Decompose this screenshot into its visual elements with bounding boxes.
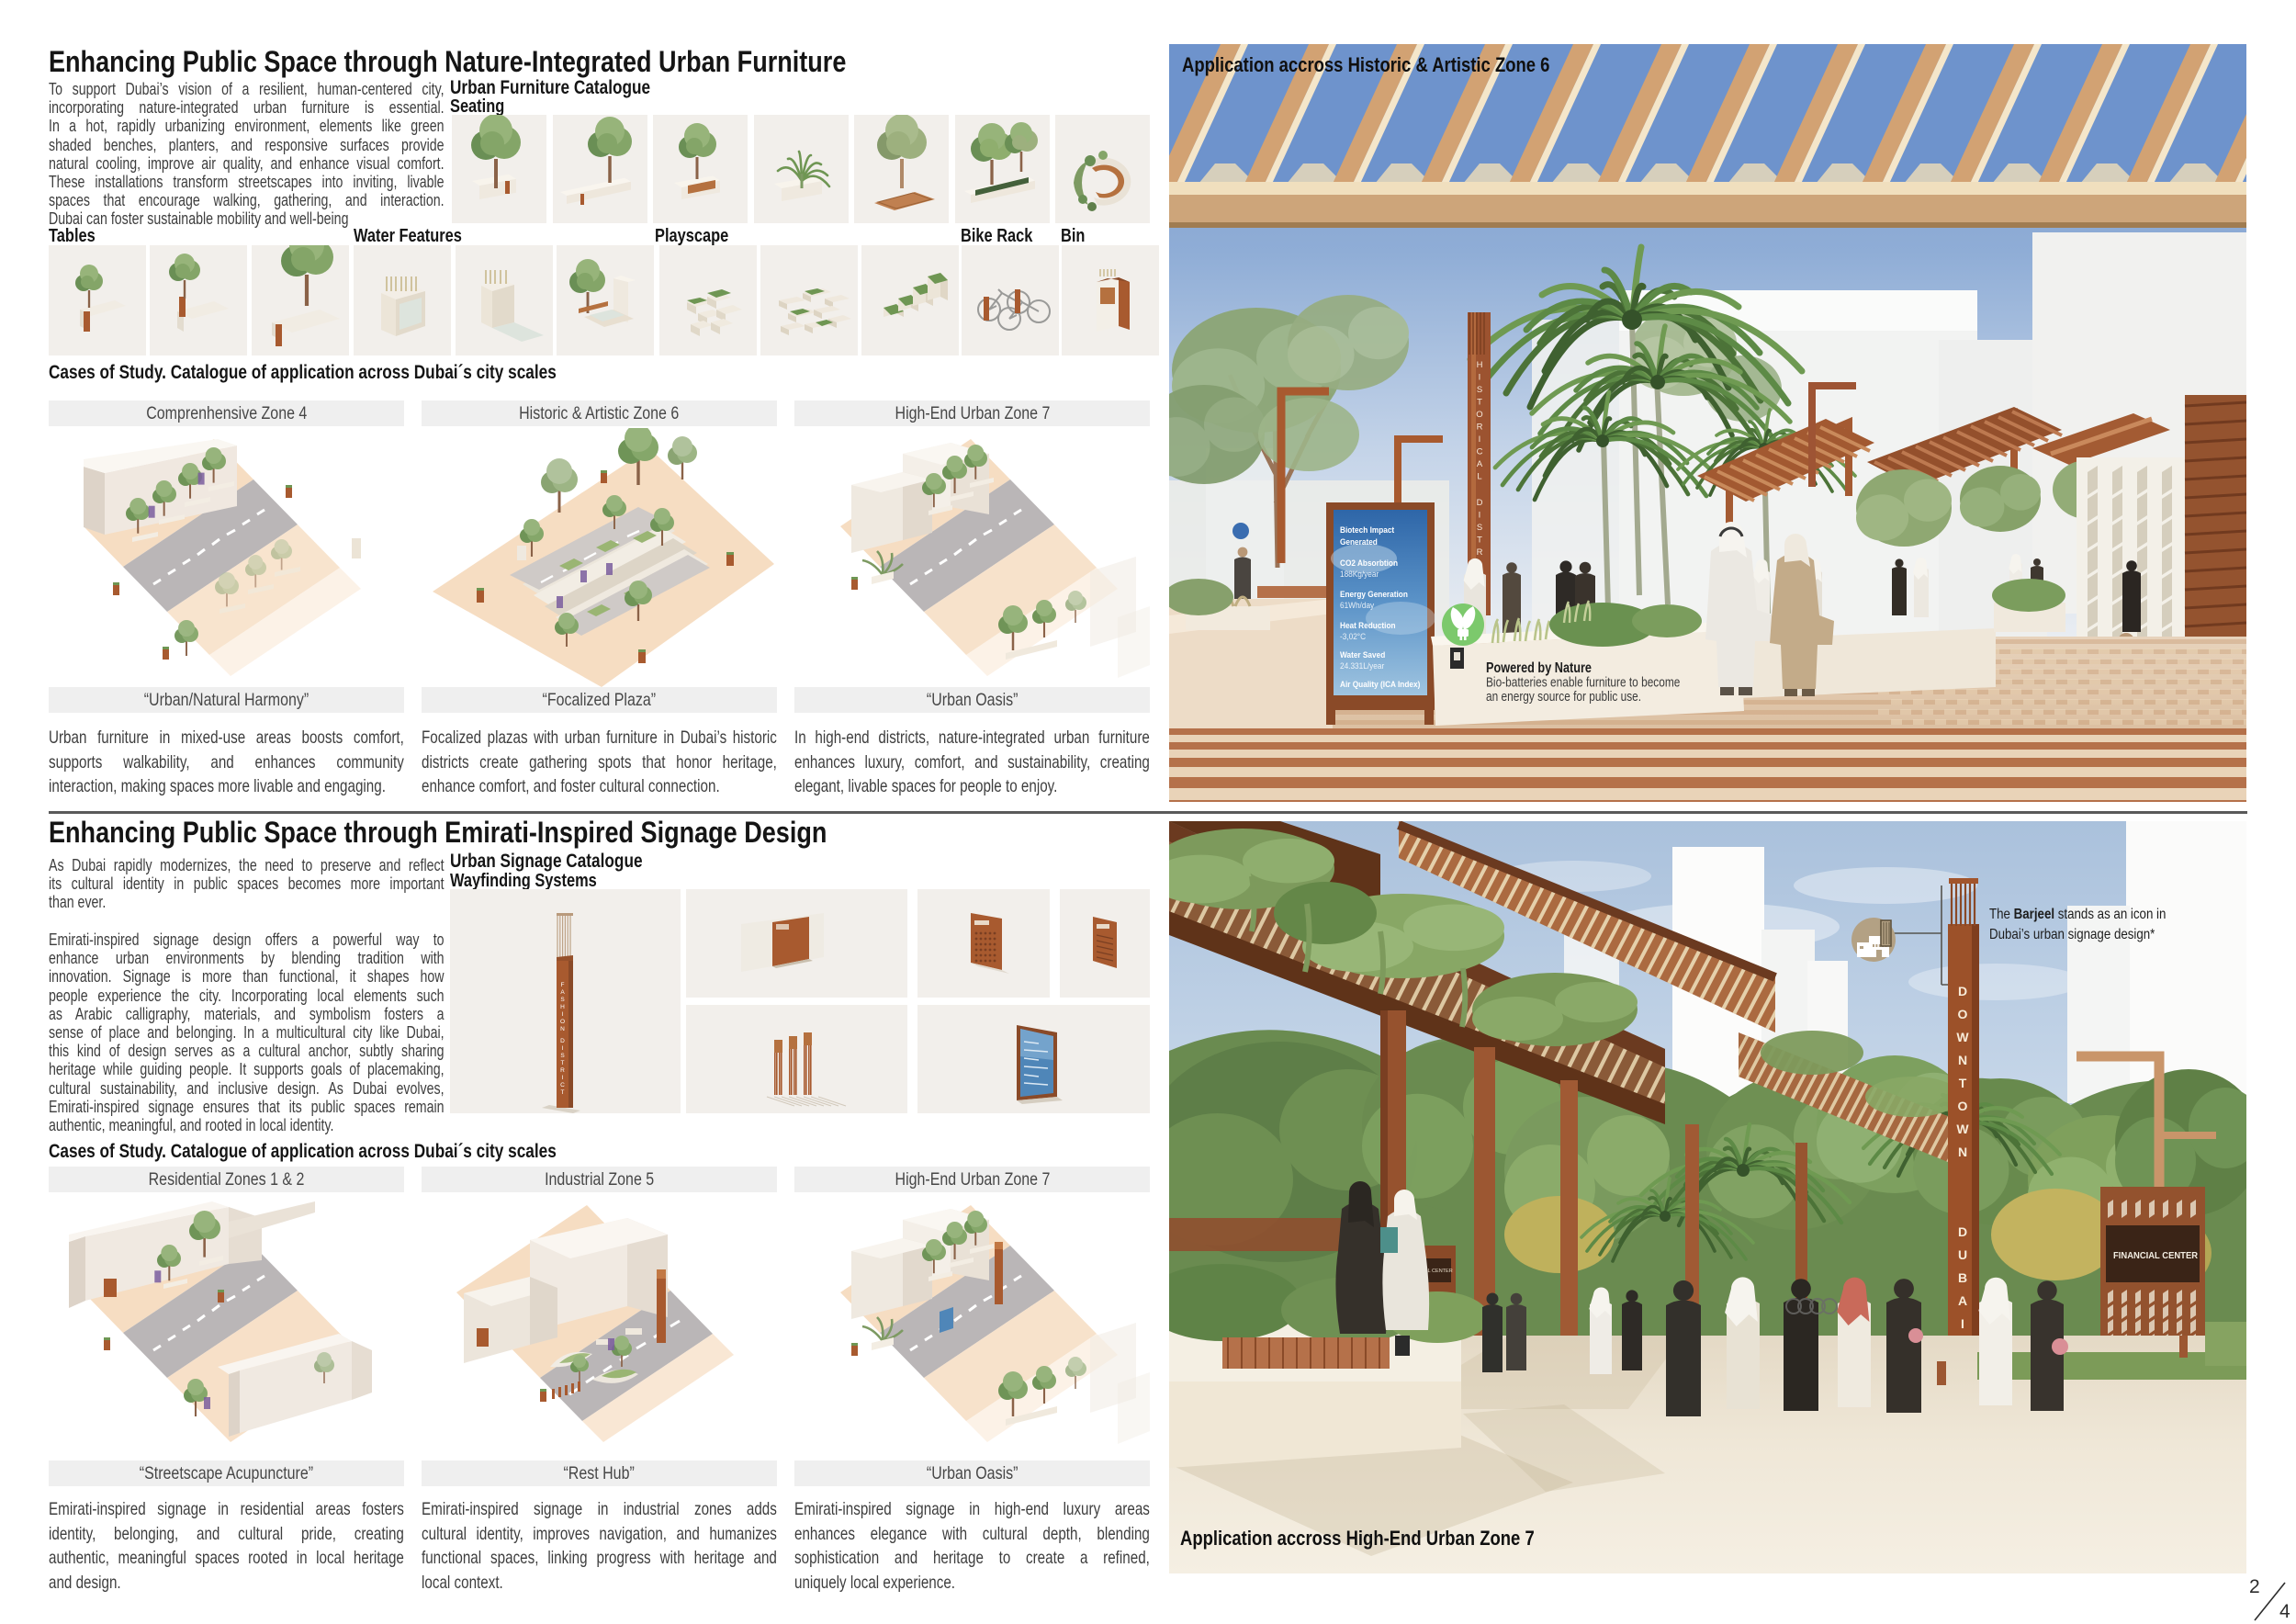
svg-text:Bio-batteries enable furniture: Bio-batteries enable furniture to become	[1486, 674, 1680, 689]
svg-text:FINANCIAL CENTER: FINANCIAL CENTER	[2113, 1251, 2198, 1262]
svg-text:The Barjeel stands as an icon: The Barjeel stands as an icon in	[1989, 907, 2166, 922]
svg-text:Water Saved: Water Saved	[1340, 650, 1385, 660]
svg-text:61Wh/day: 61Wh/day	[1340, 601, 1375, 610]
svg-text:Air Quality (ICA Index): Air Quality (ICA Index)	[1340, 680, 1420, 689]
svg-text:Dubai’s urban signage design*: Dubai’s urban signage design*	[1989, 927, 2155, 942]
svg-text:24.331L/year: 24.331L/year	[1340, 661, 1384, 671]
svg-text:an energy source for public us: an energy source for public use.	[1486, 689, 1641, 704]
svg-text:Generated: Generated	[1340, 537, 1378, 547]
svg-text:-3,02°C: -3,02°C	[1340, 632, 1366, 641]
svg-text:Biotech Impact: Biotech Impact	[1340, 525, 1394, 535]
svg-text:Energy Generation: Energy Generation	[1340, 590, 1408, 599]
svg-text:Heat Reduction: Heat Reduction	[1340, 621, 1396, 630]
svg-text:188Kg/year: 188Kg/year	[1340, 570, 1379, 579]
svg-text:CO2 Absorbtion: CO2 Absorbtion	[1340, 558, 1398, 568]
svg-text:Application accross Historic &: Application accross Historic & Artistic …	[1182, 55, 1549, 77]
svg-text:Application accross High-End U: Application accross High-End Urban Zone …	[1180, 1528, 1535, 1551]
